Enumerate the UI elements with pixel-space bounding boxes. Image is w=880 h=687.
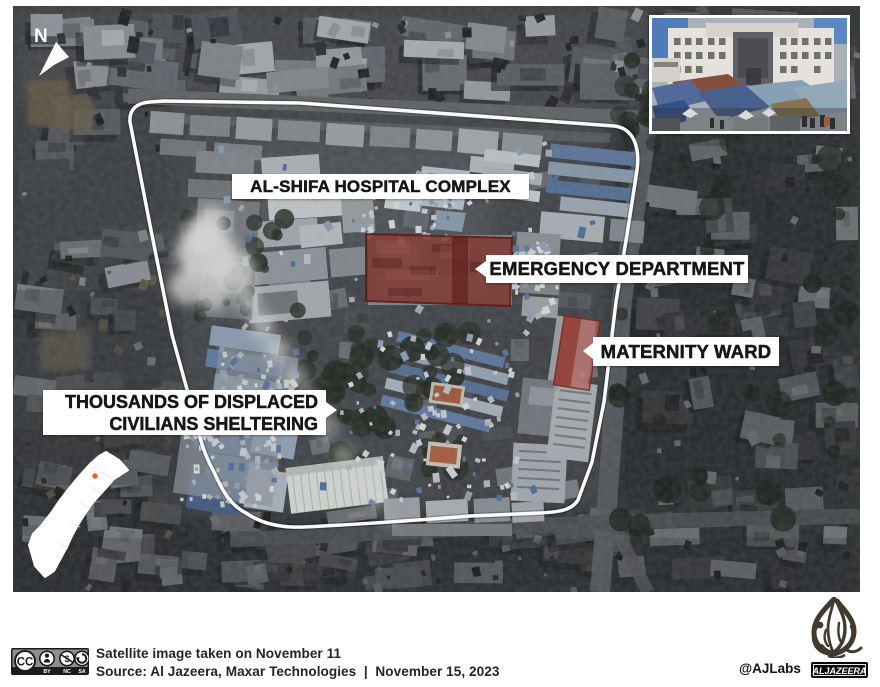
svg-text:CC: CC [17,656,34,668]
svg-text:NC: NC [63,669,71,675]
svg-text:BY: BY [43,669,51,675]
svg-text:SA: SA [78,669,85,675]
svg-text:N: N [34,26,48,47]
